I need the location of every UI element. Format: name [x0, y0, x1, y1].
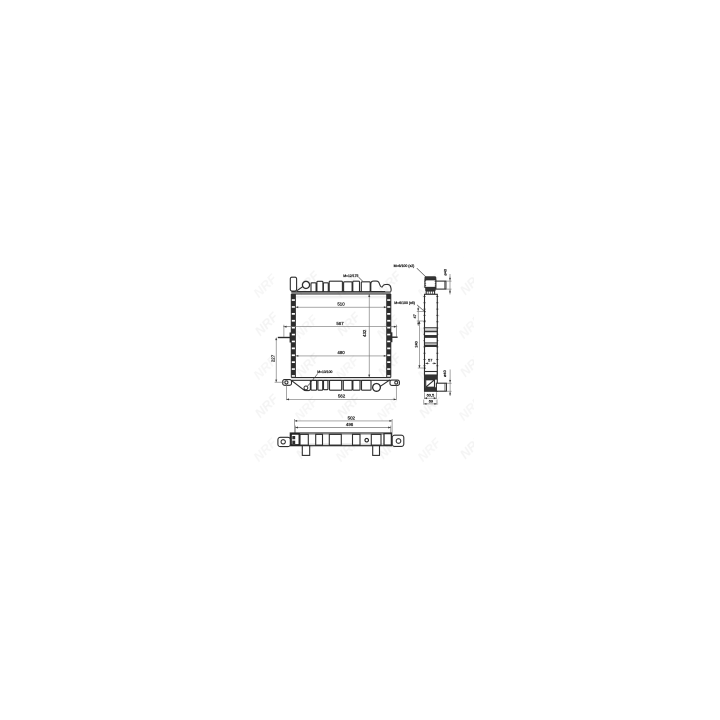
svg-text:562: 562 [338, 394, 346, 399]
svg-text:432: 432 [362, 329, 367, 337]
svg-text:69: 69 [429, 398, 433, 403]
svg-text:502: 502 [348, 415, 356, 420]
svg-text:567: 567 [336, 321, 344, 326]
svg-text:M=6/100 (x6): M=6/100 (x6) [394, 301, 415, 305]
svg-text:60,5: 60,5 [427, 393, 435, 398]
svg-text:510: 510 [337, 301, 345, 306]
svg-text:480: 480 [337, 350, 345, 355]
svg-text:227: 227 [270, 354, 275, 362]
svg-text:57: 57 [428, 357, 432, 362]
svg-text:M=6/100 (x2): M=6/100 (x2) [394, 264, 415, 268]
svg-text:M=12/175: M=12/175 [343, 274, 358, 278]
svg-text:47: 47 [412, 314, 417, 318]
svg-text:⌀40: ⌀40 [442, 268, 447, 276]
svg-text:⌀40: ⌀40 [442, 369, 447, 377]
svg-text:496: 496 [346, 422, 354, 427]
svg-text:M=10/100: M=10/100 [317, 370, 332, 374]
svg-text:240: 240 [413, 340, 418, 347]
